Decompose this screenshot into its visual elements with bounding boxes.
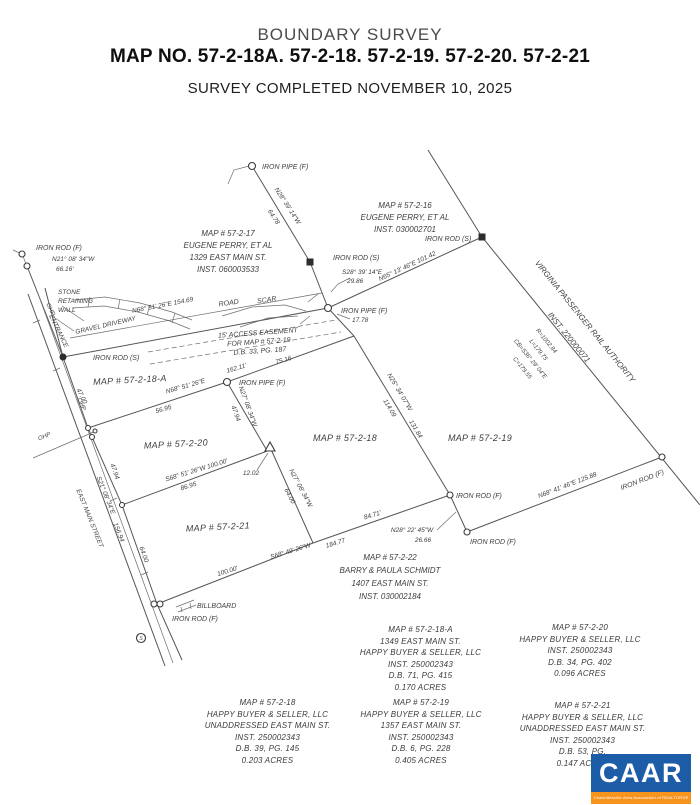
bearing-label: S68° 51' 26"W 100.00' xyxy=(164,457,229,484)
iron-rod-marker xyxy=(659,454,665,460)
summary-line: HAPPY BUYER & SELLER, LLC xyxy=(500,634,660,646)
iron-rod-label: IRON ROD (F) xyxy=(456,493,502,500)
iron-pipe-label: IRON PIPE (F) xyxy=(239,380,285,387)
corner-triangle-marker xyxy=(265,442,275,451)
iron-rod-set-marker xyxy=(307,259,314,266)
summary-line: 0.096 ACRES xyxy=(500,668,660,680)
feature-label: STONE xyxy=(58,289,81,296)
summary-line: MAP # 57-2-20 xyxy=(500,622,660,634)
parcel-summary-block: MAP # 57-2-19 HAPPY BUYER & SELLER, LLC … xyxy=(342,697,500,766)
iron-rod-label: IRON ROD (F) xyxy=(172,616,218,623)
iron-pipe-label: IRON PIPE (F) xyxy=(262,164,308,171)
summary-line: MAP # 57-2-18 xyxy=(190,697,345,709)
iron-rod-set-marker xyxy=(60,354,67,361)
owner-label: INST. 030002184 xyxy=(359,592,422,601)
parcel-summary-block: MAP # 57-2-20 HAPPY BUYER & SELLER, LLC … xyxy=(500,622,660,680)
feature-label: BILLBOARD xyxy=(197,603,236,610)
feature-label: SCAR xyxy=(257,296,277,306)
summary-line: HAPPY BUYER & SELLER, LLC xyxy=(190,709,345,721)
distance-label: 66.16' xyxy=(56,266,74,273)
distance-label: 26.66 xyxy=(414,537,432,544)
parcel-label: MAP # 57-2-18-A xyxy=(93,373,167,387)
bearing-label: S68° 49' 26"W xyxy=(269,541,312,561)
summary-line: INST. 250002343 xyxy=(500,645,660,657)
summary-line: INST. 250002343 xyxy=(338,659,503,671)
feature-label: GRAVEL DRIVEWAY xyxy=(75,315,137,336)
parcel-label: MAP # 57-2-17 xyxy=(201,229,255,238)
summary-line: INST. 250002343 xyxy=(342,732,500,744)
distance-label: 47.94 xyxy=(229,405,241,423)
iron-rod-marker xyxy=(151,601,157,607)
distance-label: 184.77 xyxy=(325,537,346,550)
distance-label: 162.11' xyxy=(226,362,248,375)
feature-label: ENTRANCE xyxy=(47,314,69,350)
bearing-label: N68° 51' 26"E 154.69 xyxy=(131,295,194,315)
bearing-label: N65° 13' 46"E 101.42 xyxy=(377,249,437,283)
summary-line: 0.203 ACRES xyxy=(190,755,345,767)
owner-label: EUGENE PERRY, ET AL xyxy=(184,241,273,250)
summary-line: MAP # 57-2-18-A xyxy=(338,624,503,636)
summary-line: HAPPY BUYER & SELLER, LLC xyxy=(338,647,503,659)
feature-label: OHP xyxy=(37,432,51,443)
survey-labels: IRON ROD (F) IRON PIPE (F) IRON ROD (S) … xyxy=(36,164,665,642)
feature-label: ROAD xyxy=(218,299,239,309)
street-label: EAST MAIN STREET xyxy=(74,488,104,550)
iron-rod-marker xyxy=(447,492,453,498)
summary-line: 1357 EAST MAIN ST. xyxy=(342,720,500,732)
boundary-survey-page: { "header": { "title": "BOUNDARY SURVEY"… xyxy=(0,0,700,805)
iron-rod-label: IRON ROD (F) xyxy=(36,245,82,252)
feature-label: RETAINING xyxy=(58,298,93,305)
iron-rod-set-marker xyxy=(479,234,486,241)
summary-line: INST. 250002343 xyxy=(505,735,660,747)
owner-label: 1329 EAST MAIN ST. xyxy=(189,253,266,262)
summary-line: 0.405 ACRES xyxy=(342,755,500,767)
summary-line: 1349 EAST MAIN ST. xyxy=(338,636,503,648)
distance-label: 64.78 xyxy=(266,208,281,226)
easement-label: D.B. 33, PG. 187 xyxy=(233,346,287,357)
owner-label: 1407 EAST MAIN ST. xyxy=(351,579,428,588)
iron-pipe-label: IRON PIPE (F) xyxy=(341,308,387,315)
parcel-label: MAP # 57-2-19 xyxy=(448,433,512,443)
distance-label: 75.16 xyxy=(275,355,293,366)
parcel-label: MAP # 57-2-22 xyxy=(363,553,417,562)
railroad-owner-label: VIRGINIA PASSENGER RAIL AUTHORITY xyxy=(533,259,637,385)
road-lines xyxy=(28,288,182,666)
distance-label: 56.95 xyxy=(155,404,173,415)
summary-line: INST. 250002343 xyxy=(190,732,345,744)
utility-pole-marker xyxy=(93,429,97,433)
caar-logo: CAAR Charlottesville Area Association of… xyxy=(591,754,691,805)
corner-marker xyxy=(90,435,95,440)
summary-line: UNADDRESSED EAST MAIN ST. xyxy=(505,723,660,735)
caar-logo-tagline: Charlottesville Area Association of REAL… xyxy=(591,792,691,804)
summary-line: HAPPY BUYER & SELLER, LLC xyxy=(505,712,660,724)
parcel-summary-block: MAP # 57-2-18-A 1349 EAST MAIN ST. HAPPY… xyxy=(338,624,503,693)
feature-label: WALL xyxy=(58,307,76,314)
iron-pipe-marker xyxy=(325,305,332,312)
bearing-label: N68° 51' 26"E xyxy=(165,376,207,395)
caar-logo-text: CAAR xyxy=(591,754,691,792)
iron-rod-marker xyxy=(24,263,30,269)
parcel-summary-block: MAP # 57-2-18 HAPPY BUYER & SELLER, LLC … xyxy=(190,697,345,766)
summary-line: UNADDRESSED EAST MAIN ST. xyxy=(190,720,345,732)
bearing-label: N27° 08' 34"W xyxy=(237,385,259,428)
iron-rod-label: IRON ROD (F) xyxy=(620,469,665,492)
summary-line: D.B. 6, PG. 228 xyxy=(342,743,500,755)
iron-pipe-marker xyxy=(249,163,256,170)
summary-line: HAPPY BUYER & SELLER, LLC xyxy=(342,709,500,721)
owner-label: EUGENE PERRY, ET AL xyxy=(361,213,450,222)
distance-label: 114.09 xyxy=(381,398,397,419)
iron-rod-marker xyxy=(464,529,470,535)
distance-label: 17.78 xyxy=(352,317,369,324)
corner-marker xyxy=(86,426,91,431)
iron-rod-marker xyxy=(157,601,163,607)
parcel-label: MAP # 57-2-18 xyxy=(313,433,377,443)
owner-label: BARRY & PAULA SCHMIDT xyxy=(340,566,442,575)
distance-label: 64.00 xyxy=(282,487,296,505)
summary-line: D.B. 34, PG. 402 xyxy=(500,657,660,669)
iron-rod-label: IRON ROD (S) xyxy=(425,236,471,243)
distance-label: 29.86 xyxy=(346,278,364,285)
distance-label: 156.94 xyxy=(111,522,125,543)
owner-label: INST. 030002701 xyxy=(374,225,436,234)
summary-line: 0.170 ACRES xyxy=(338,682,503,694)
parcel-label: MAP # 57-2-20 xyxy=(144,437,209,450)
bearing-label: N28° 22' 45"W xyxy=(391,526,434,534)
bearing-label: S21° 08' 34"E xyxy=(95,475,118,516)
bearing-label: N21° 08' 34"W xyxy=(52,255,95,263)
parcel-label: MAP # 57-2-16 xyxy=(378,201,432,210)
summary-line: D.B. 71, PG. 415 xyxy=(338,670,503,682)
iron-pipe-marker xyxy=(224,379,231,386)
summary-line: D.B. 39, PG. 145 xyxy=(190,743,345,755)
iron-rod-label: IRON ROD (S) xyxy=(333,255,379,262)
corner-marker xyxy=(120,503,125,508)
parcel-label: MAP # 57-2-21 xyxy=(186,520,251,533)
iron-rod-label: IRON ROD (S) xyxy=(93,355,139,362)
bearing-label: S28° 39' 14"E xyxy=(342,268,383,276)
owner-label: INST. 060003533 xyxy=(197,265,260,274)
summary-line: MAP # 57-2-19 xyxy=(342,697,500,709)
iron-rod-label: IRON ROD (F) xyxy=(470,539,516,546)
distance-label: 12.02 xyxy=(243,470,260,477)
summary-line: MAP # 57-2-21 xyxy=(505,700,660,712)
iron-rod-marker xyxy=(19,251,25,257)
